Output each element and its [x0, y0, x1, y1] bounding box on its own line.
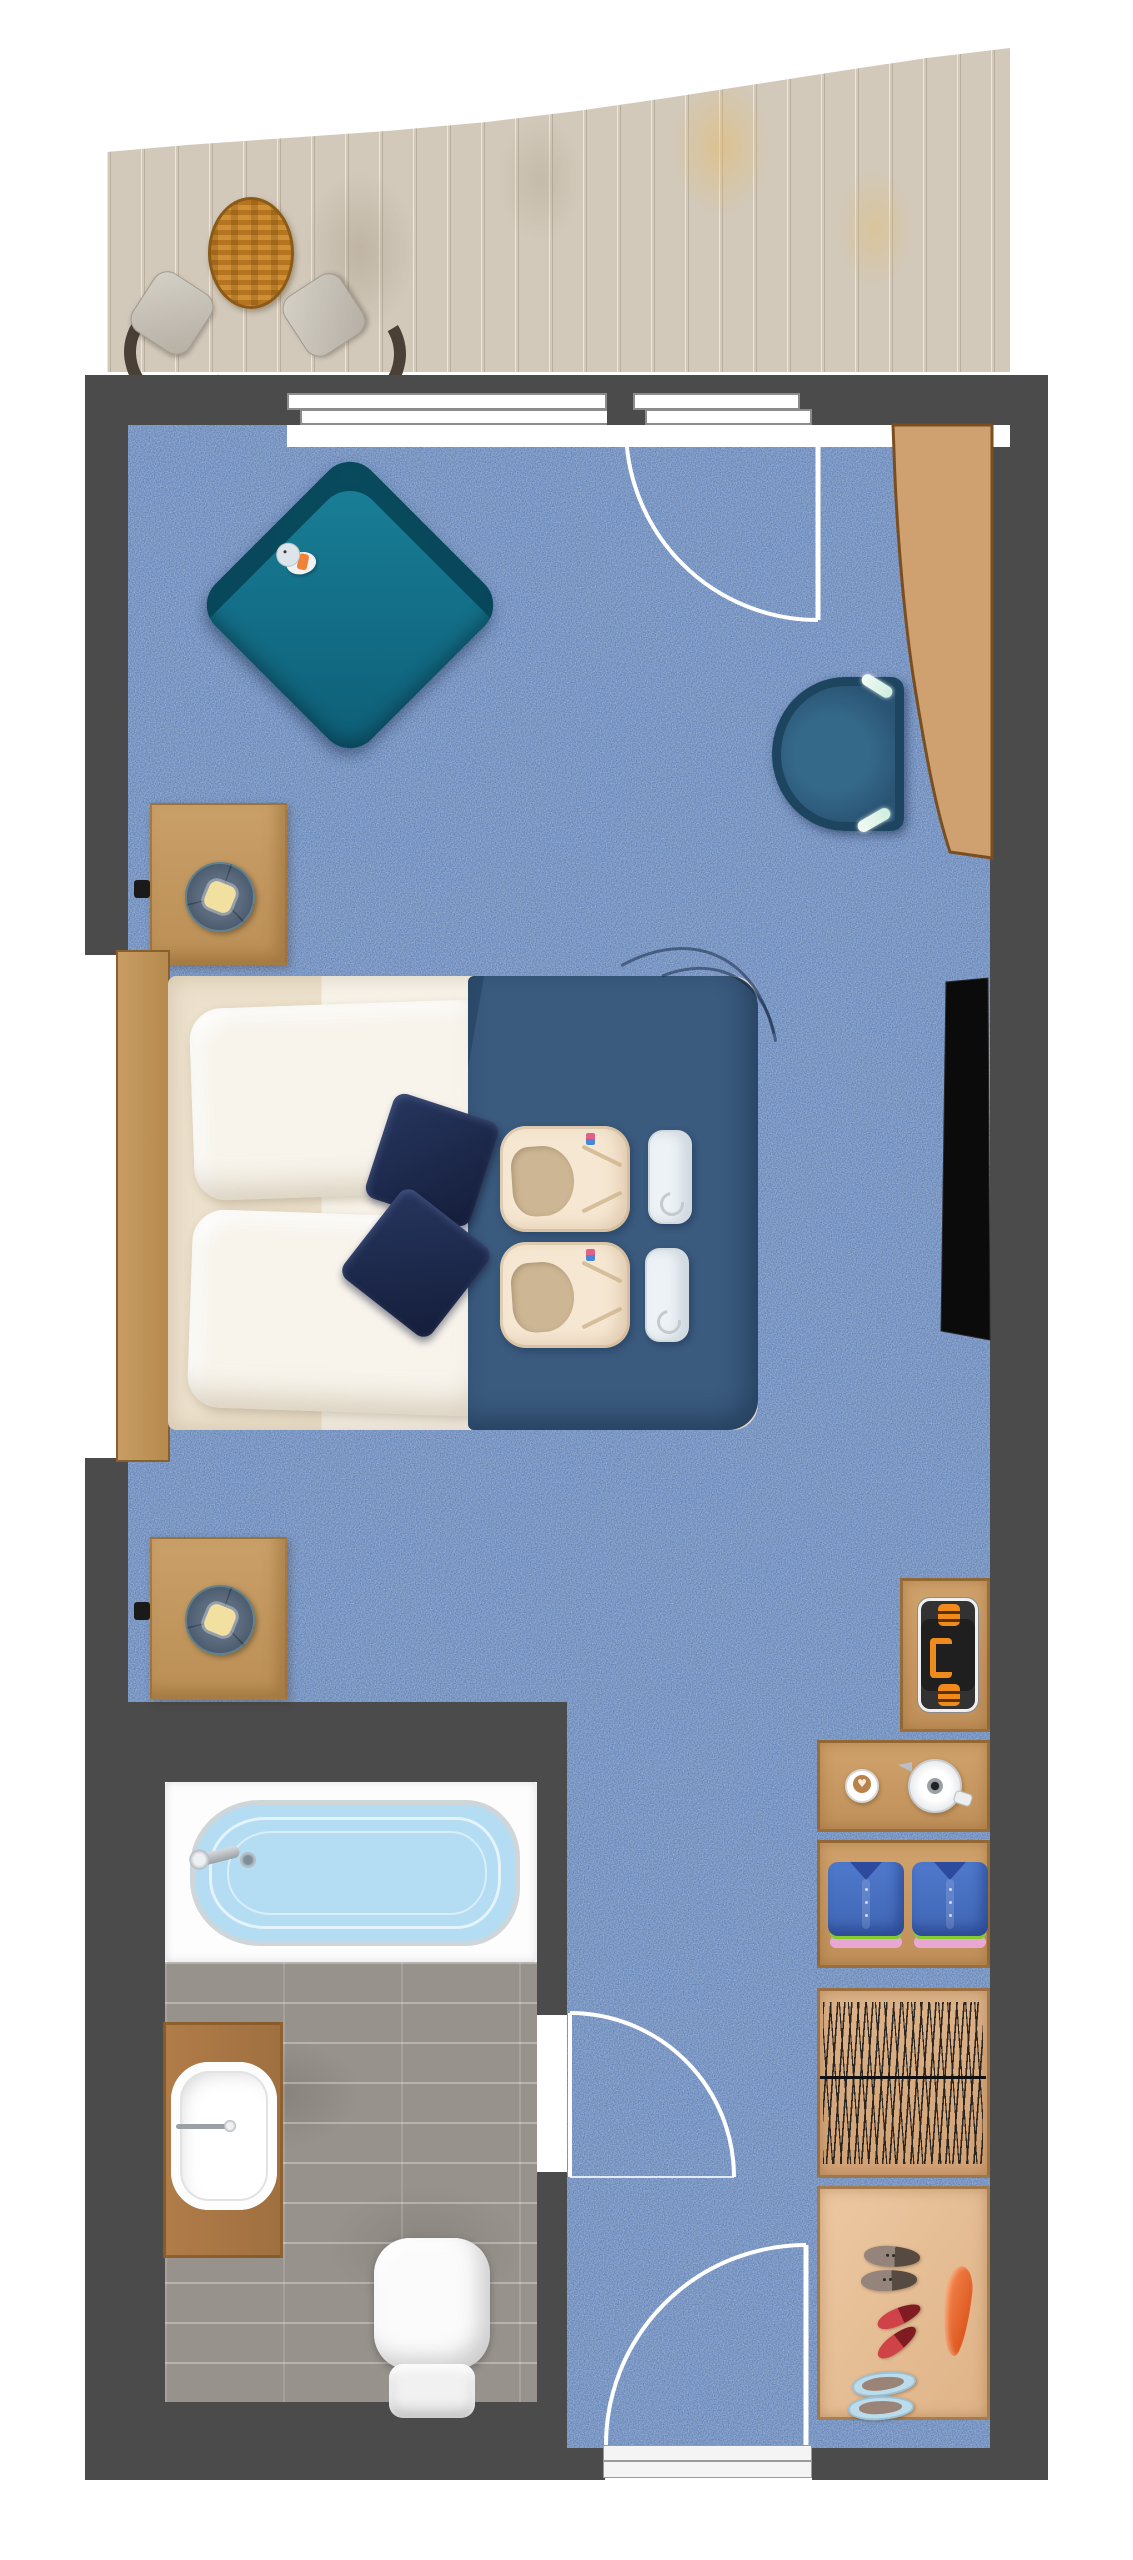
wall-left-mid — [85, 1458, 128, 1702]
luggage-handle-icon — [930, 1638, 952, 1678]
wall-bottom-bathroom — [85, 2400, 605, 2480]
bathrobe-logo — [586, 1249, 595, 1261]
closet-rail-icon — [820, 2076, 986, 2079]
door-mullion — [607, 390, 633, 425]
lamp-icon — [185, 1585, 255, 1655]
wall-right — [990, 375, 1048, 2480]
bathrobe-opening — [510, 1144, 577, 1218]
balcony-door-panel — [633, 393, 800, 410]
bathrobe — [500, 1126, 630, 1232]
shirt-placket — [946, 1879, 954, 1929]
vanity-sink — [171, 2062, 277, 2210]
floor-plan — [0, 0, 1133, 2560]
beverage-counter — [817, 1740, 990, 1832]
bed-headboard — [116, 950, 170, 1462]
toilet — [374, 2238, 490, 2370]
shirt-buttons — [865, 1888, 868, 1891]
bathtub-rim — [227, 1831, 487, 1915]
towel-roll — [648, 1130, 692, 1224]
toilet-base — [389, 2364, 475, 2418]
bathrobe — [500, 1242, 630, 1348]
folded-shirt — [912, 1862, 988, 1950]
lamp-icon — [185, 862, 255, 932]
wall-bathroom-right-upper — [537, 1782, 567, 2015]
sliding-door-panel — [287, 393, 607, 410]
luggage-strap-icon — [938, 1604, 960, 1626]
sink-faucet-icon — [176, 2124, 232, 2129]
wall-left-bathroom — [85, 1702, 165, 2430]
hanger-rail — [823, 2002, 983, 2164]
wall-outlet-icon — [134, 880, 150, 898]
sliding-door-panel — [300, 409, 618, 425]
towel-roll — [645, 1248, 689, 1342]
bathtub — [190, 1800, 520, 1946]
bathrobe-logo — [586, 1133, 595, 1145]
luggage-strap-icon — [938, 1684, 960, 1706]
bathtub-drain-icon — [240, 1852, 256, 1868]
wall-bathroom-top — [128, 1702, 567, 1782]
shirt-placket — [862, 1879, 870, 1929]
balcony-door-panel — [645, 409, 812, 425]
sliding-door-sill — [287, 425, 1010, 447]
wall-left-upper — [85, 375, 128, 955]
entry-threshold — [603, 2445, 812, 2478]
folded-shirt — [828, 1862, 904, 1950]
bathrobe-opening — [510, 1260, 577, 1334]
wall-outlet-icon — [134, 1602, 150, 1620]
balcony-table — [208, 197, 294, 309]
coffee-cup — [845, 1769, 879, 1803]
plush-elephant-toy — [271, 531, 333, 593]
kettle — [908, 1759, 962, 1813]
shirt-buttons — [949, 1888, 952, 1891]
